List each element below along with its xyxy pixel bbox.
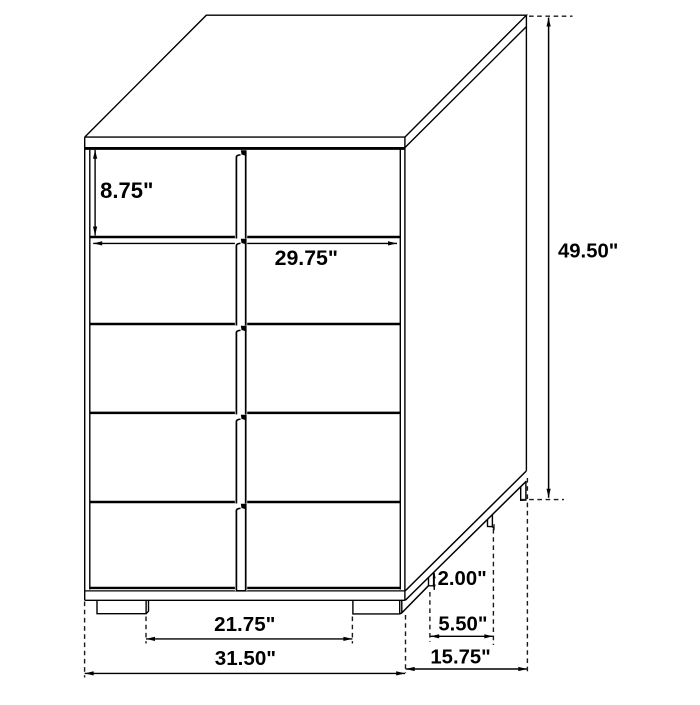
- svg-text:5.50": 5.50": [438, 614, 487, 636]
- svg-text:31.50": 31.50": [215, 647, 276, 670]
- svg-text:2.00": 2.00": [438, 568, 487, 590]
- svg-text:49.50": 49.50": [558, 241, 618, 263]
- svg-text:15.75": 15.75": [430, 646, 490, 668]
- svg-text:29.75": 29.75": [275, 246, 338, 270]
- svg-text:21.75": 21.75": [214, 613, 275, 636]
- svg-text:8.75": 8.75": [100, 178, 153, 203]
